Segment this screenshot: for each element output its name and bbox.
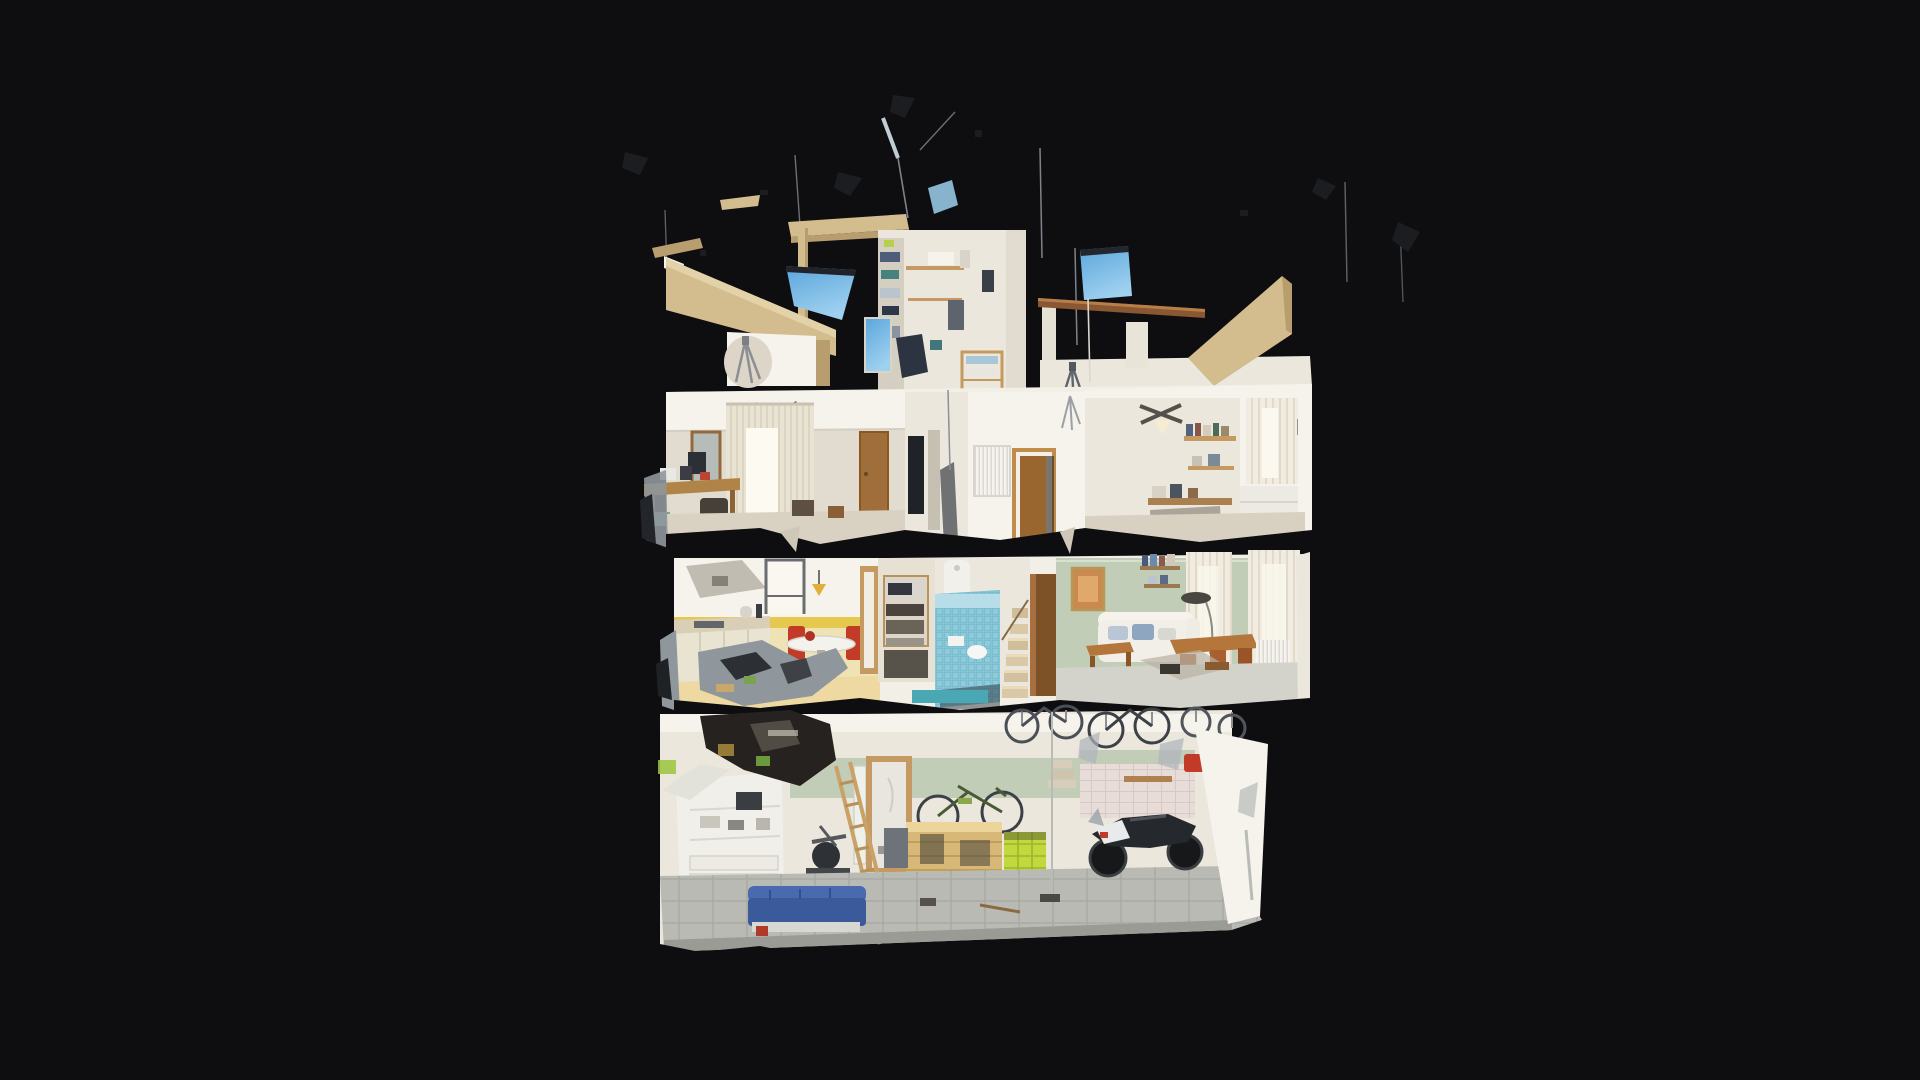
antenna-line xyxy=(795,155,800,226)
terrace-wall-right xyxy=(1040,356,1312,388)
glitch-dark-bit xyxy=(712,576,728,586)
picture-art xyxy=(1078,576,1098,602)
floor-debris xyxy=(920,898,936,906)
mast-fragment xyxy=(883,118,898,158)
terrace-level xyxy=(664,230,1312,408)
blue-pillow xyxy=(1132,624,1154,640)
viewer-canvas[interactable] xyxy=(0,0,1920,1080)
drawer xyxy=(690,856,778,870)
living-side-wall xyxy=(1296,552,1310,710)
antenna-line xyxy=(920,112,955,150)
wall-shelf xyxy=(1124,776,1172,782)
sink xyxy=(694,621,724,628)
debris-dot xyxy=(1240,210,1248,216)
blue-pillow xyxy=(1108,626,1128,640)
wall-fragment xyxy=(816,340,830,386)
round-table xyxy=(787,636,855,652)
garage-level xyxy=(658,690,1268,970)
bench-base xyxy=(752,922,860,932)
office-window-glow xyxy=(1262,408,1278,478)
mosaic-highlight xyxy=(935,594,1000,608)
crate-decal xyxy=(920,834,944,864)
wardrobe-highlight xyxy=(1030,574,1036,696)
roof-fragment xyxy=(890,95,915,118)
roof-fragment xyxy=(1392,222,1420,252)
sky-window xyxy=(865,318,891,372)
tile-trim xyxy=(674,614,880,617)
antenna-line xyxy=(898,158,908,218)
toilet xyxy=(967,645,987,659)
dark-doorway xyxy=(908,436,924,514)
glitch-streak xyxy=(928,430,940,530)
bathroom-sink xyxy=(948,636,964,646)
living-radiator xyxy=(1256,640,1290,666)
hanging-clothes-teal xyxy=(930,340,942,350)
roof-fragment xyxy=(834,172,862,196)
kettle xyxy=(740,606,752,618)
hanging-debris xyxy=(982,270,994,292)
floor-debris xyxy=(1040,894,1060,902)
antenna-line xyxy=(1345,182,1347,282)
gray-bin xyxy=(884,828,908,868)
door-opening xyxy=(864,572,874,668)
hanging-debris xyxy=(960,250,970,268)
sky-patch-small xyxy=(928,180,958,214)
teal-mat-overhang xyxy=(912,690,988,703)
floor-box xyxy=(828,506,844,518)
red-teapot xyxy=(805,631,815,641)
antenna-line xyxy=(1075,248,1077,345)
pillow xyxy=(1158,628,1176,640)
crate-decal xyxy=(960,840,990,866)
roof-fragment-beige xyxy=(720,195,760,210)
debris-dot xyxy=(975,130,982,137)
shower-head xyxy=(954,565,960,571)
lime-strip xyxy=(658,760,676,774)
tower-shelf xyxy=(906,266,964,270)
debris-dot xyxy=(760,190,768,195)
hall-door xyxy=(1020,456,1046,544)
antenna-line xyxy=(1040,148,1042,258)
door-handle xyxy=(864,472,868,476)
bottle xyxy=(756,604,762,618)
red-detail xyxy=(756,926,768,936)
roof-fragment xyxy=(1312,178,1336,200)
wall-fragment xyxy=(1126,322,1148,368)
blue-bench xyxy=(748,886,866,936)
microwave-door xyxy=(888,583,912,595)
beam-post xyxy=(1042,300,1056,360)
pantry-shelves xyxy=(884,576,928,678)
radiator xyxy=(974,446,1010,496)
floor-vacuum xyxy=(792,500,814,516)
cabinet-mirror xyxy=(736,792,762,810)
fairing-decal xyxy=(1100,832,1108,838)
storage-box xyxy=(928,252,954,265)
hanging-debris xyxy=(948,300,964,330)
roof-fragment-beige xyxy=(652,238,703,258)
tower-side-shade xyxy=(1006,230,1026,390)
bedroom-level xyxy=(640,384,1312,560)
dollhouse-model[interactable] xyxy=(0,0,1920,1080)
sage-wall-band xyxy=(790,758,1080,798)
debris-dot xyxy=(700,250,706,256)
roof-fragment xyxy=(622,152,648,175)
door-gap-shadow xyxy=(1046,456,1054,544)
